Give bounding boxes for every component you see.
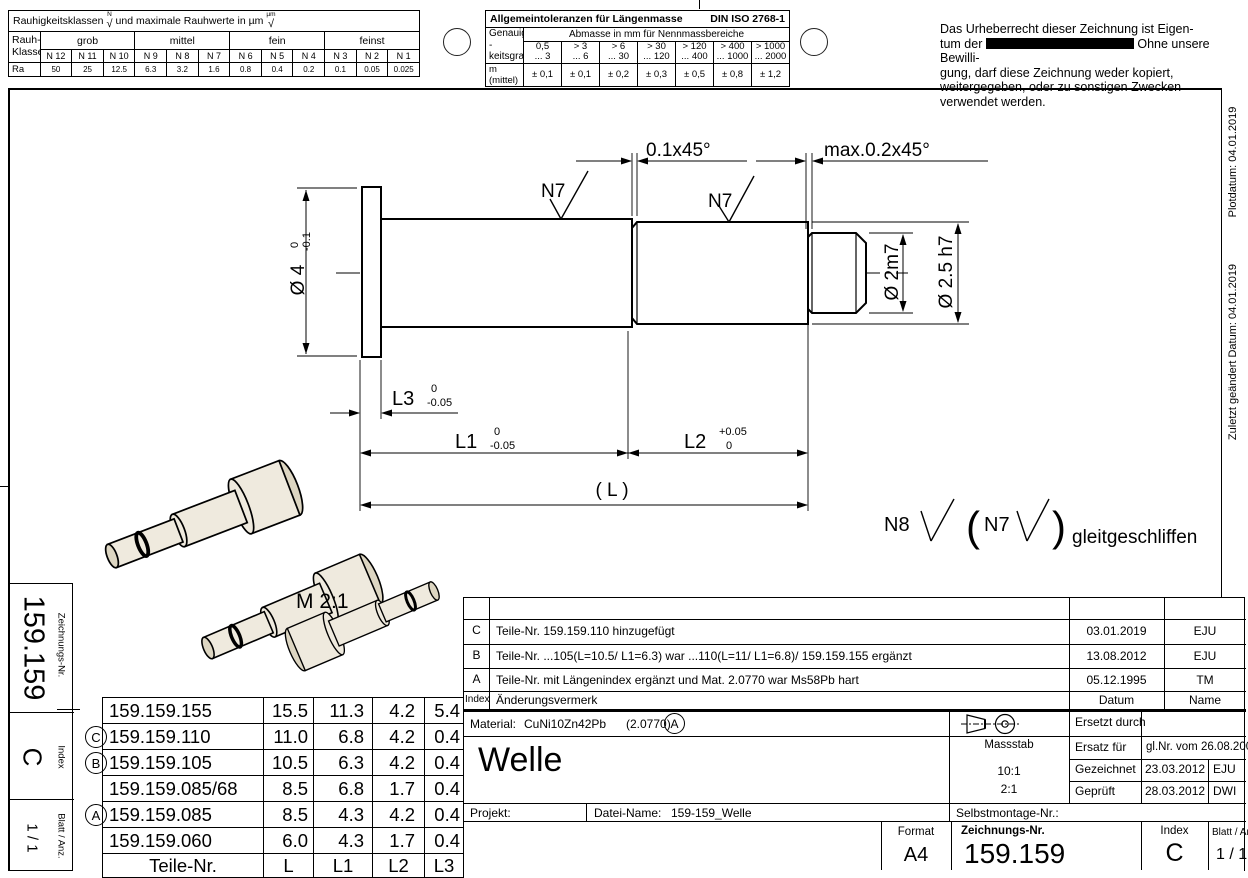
iso-scale-label: M 2:1 [296, 590, 349, 613]
ra-value: 0.8 [230, 63, 262, 77]
roughness-group: feinst [325, 32, 420, 50]
table-row: 159.159.105 10.5 6.3 4.2 0.4 [103, 750, 464, 776]
datei-label: Datei-Name: [594, 806, 661, 820]
svg-text:0: 0 [494, 426, 500, 438]
strip-blatt-value: 1 / 1 [24, 823, 41, 852]
part-nr: 159.159.155 [103, 698, 264, 724]
revision-date: 03.01.2019 [1069, 624, 1164, 638]
tolerance-table: Allgemeintoleranzen für Längenmasse DIN … [485, 10, 790, 87]
geprueft-label: Geprüft [1075, 784, 1115, 798]
revision-text: Teile-Nr. mit Längenindex ergänzt und Ma… [496, 673, 859, 687]
table-header-row: Teile-Nr. L L1 L2 L3 [103, 854, 464, 878]
geprueft-date: 28.03.2012 [1145, 784, 1205, 798]
zeichnungs-nr-value: 159.159 [964, 838, 1065, 870]
strip-blatt-label: Blatt / Anz. [56, 813, 67, 858]
revision-index: A [464, 672, 489, 686]
revision-header-name: Name [1164, 693, 1246, 707]
roughness-group: mittel [135, 32, 230, 50]
ersetzt-label: Ersetzt durch [1075, 715, 1146, 729]
revision-marker-a: A [85, 804, 107, 826]
surface-symbol-mid: N7 [708, 176, 754, 222]
revision-name: TM [1164, 673, 1246, 687]
blatt-label: Blatt / Anz. [1212, 827, 1248, 838]
selbstmontage-label: Selbstmontage-Nr.: [956, 806, 1059, 820]
roughness-class: N 12 [40, 50, 72, 63]
iso-view-group [97, 458, 446, 675]
geprueft-name: DWI [1213, 784, 1236, 798]
part-nr: 159.159.105 [103, 750, 264, 776]
ra-value: 12.5 [103, 63, 135, 77]
roughness-class: N 10 [103, 50, 135, 63]
material-revision-marker: A [664, 713, 685, 734]
format-label: Format [883, 826, 949, 838]
tolerance-m-label: m (mittel) [486, 63, 524, 86]
projekt-label: Projekt: [470, 806, 511, 820]
roughness-class: N 2 [356, 50, 388, 63]
ra-value: 0.025 [388, 63, 420, 77]
svg-text:L3: L3 [392, 388, 414, 410]
col-header-l: L [264, 854, 314, 878]
roughness-class: N 5 [261, 50, 293, 63]
copyright-line: tum der Ohne unsere Bewilli- [940, 37, 1248, 66]
roughness-class: N 6 [230, 50, 262, 63]
l3-dim: L3 0 -0.05 [392, 383, 452, 410]
svg-text:0: 0 [726, 440, 732, 452]
ra-value: 0.2 [293, 63, 325, 77]
ersatz-label: Ersatz für [1075, 740, 1126, 754]
tolerance-standard: DIN ISO 2768-1 [710, 13, 785, 25]
tolerance-range: > 30... 120 [638, 41, 676, 63]
tolerance-range: > 1000... 2000 [752, 41, 790, 63]
svg-text:-0.1: -0.1 [301, 232, 313, 251]
revision-header-index: Index [465, 694, 489, 705]
shaft-flange [362, 187, 381, 357]
revision-date: 05.12.1995 [1069, 673, 1164, 687]
datei-value: 159-159_Welle [671, 806, 752, 820]
gezeichnet-date: 23.03.2012 [1145, 762, 1205, 776]
tolerance-m-value: ± 0,3 [638, 63, 676, 86]
gezeichnet-name: EJU [1213, 762, 1236, 776]
revision-header-text: Änderungsvermerk [496, 693, 597, 707]
revision-name: EJU [1164, 624, 1246, 638]
revision-index: B [464, 648, 489, 662]
material-label: Material: [470, 717, 516, 731]
svg-text:0: 0 [431, 383, 437, 395]
tolerance-range: 0,5... 3 [524, 41, 562, 63]
scale-value-2: 2:1 [949, 782, 1069, 796]
table-row: 159.159.110 11.0 6.8 4.2 0.4 [103, 724, 464, 750]
revision-text: Teile-Nr. ...105(L=10.5/ L1=6.3) war ...… [496, 649, 912, 663]
table-row: 159.159.085 8.5 4.3 4.2 0.4 [103, 802, 464, 828]
registration-circle-left [443, 28, 471, 56]
ra-value: 0.05 [356, 63, 388, 77]
general-surface-note: N8 ( N7 ) gleitgeschliffen [884, 499, 1197, 550]
ra-value: 6.3 [135, 63, 167, 77]
ra-value: 3.2 [167, 63, 199, 77]
revision-index: C [464, 623, 489, 637]
tolerance-title: Allgemeintoleranzen für Längenmasse [490, 13, 683, 25]
svg-text:-0.05: -0.05 [427, 397, 452, 409]
svg-text:L1: L1 [455, 431, 477, 453]
part-title: Welle [478, 741, 562, 780]
svg-text:-0.05: -0.05 [490, 440, 515, 452]
roughness-table: Rauhigkeitsklassen N√ und maximale Rauhw… [8, 10, 420, 77]
revision-text: Teile-Nr. 159.159.110 hinzugefügt [496, 624, 675, 638]
zeichnungs-nr-label: Zeichnungs-Nr. [961, 825, 1045, 837]
svg-text:Ø 2m7: Ø 2m7 [882, 243, 903, 300]
shaft-outline [362, 187, 866, 357]
format-value: A4 [883, 844, 949, 867]
engineering-drawing-sheet: { "roughness_table": { "title_a": "Rauhi… [0, 0, 1248, 871]
dimension-lines [306, 161, 988, 505]
roughness-group: grob [40, 32, 135, 50]
ra-value: 1.6 [198, 63, 230, 77]
roughness-class: N 11 [72, 50, 104, 63]
end-diameter-dim: Ø 2m7 [882, 243, 903, 300]
material-value: CuNi10Zn42Pb [524, 717, 606, 731]
ra-value: 50 [40, 63, 72, 77]
l1-dim: L1 0 -0.05 [455, 426, 515, 453]
table-row: 159.159.060 6.0 4.3 1.7 0.4 [103, 828, 464, 854]
tolerance-m-value: ± 0,8 [714, 63, 752, 86]
flange-diameter-dim: Ø 4 0 -0.1 [288, 232, 313, 295]
roughness-class: N 3 [325, 50, 357, 63]
tolerance-m-value: ± 0,5 [676, 63, 714, 86]
ra-value: 25 [72, 63, 104, 77]
svg-text:N8: N8 [884, 514, 910, 536]
part-nr: 159.159.110 [103, 724, 264, 750]
col-header-l1: L1 [314, 854, 373, 878]
revision-name: EJU [1164, 649, 1246, 663]
strip-index-value: C [17, 748, 48, 767]
tolerance-m-value: ± 0,1 [524, 63, 562, 86]
svg-text:0: 0 [289, 242, 301, 248]
strip-index-label: Index [56, 745, 67, 768]
iso-shaft-large [97, 458, 308, 585]
svg-text:Ø 2.5 h7: Ø 2.5 h7 [936, 236, 957, 309]
revision-marker-b: B [85, 752, 107, 774]
projection-method-icon [959, 712, 1059, 736]
copyright-line: gung, darf diese Zeichnung weder kopiert… [940, 66, 1248, 81]
ra-value: 0.4 [261, 63, 293, 77]
part-nr: 159.159.060 [103, 828, 264, 854]
revision-date: 13.08.2012 [1069, 649, 1164, 663]
parts-table: 159.159.155 15.5 11.3 4.2 5.4 159.159.11… [102, 697, 464, 878]
tolerance-m-value: ± 0,1 [562, 63, 600, 86]
roughness-class: N 8 [167, 50, 199, 63]
col-header-teile-nr: Teile-Nr. [103, 854, 264, 878]
roughness-class: N 4 [293, 50, 325, 63]
revision-header-date: Datum [1069, 693, 1164, 707]
ersatz-value: gl.Nr. vom 26.08.2002 [1146, 741, 1248, 753]
svg-text:N7: N7 [984, 514, 1010, 536]
tolerance-range: > 120... 400 [676, 41, 714, 63]
roughness-symbol-n-icon: N√ [106, 12, 112, 30]
index-label: Index [1141, 825, 1208, 837]
svg-text:+0.05: +0.05 [719, 426, 747, 438]
l-total-dim: ( L ) [595, 480, 628, 501]
col-header-l2: L2 [373, 854, 425, 878]
massstab-label: Massstab [949, 739, 1069, 751]
extension-lines [297, 153, 969, 511]
roughness-class: N 1 [388, 50, 420, 63]
fold-mark-top [699, 0, 700, 9]
roughness-group: fein [230, 32, 325, 50]
col-header-l3: L3 [425, 854, 464, 878]
shaft-mid-section [632, 222, 808, 324]
chamfer-dim-left: 0.1x45° [646, 140, 711, 161]
svg-text:L2: L2 [684, 431, 706, 453]
tolerance-m-value: ± 1,2 [752, 63, 790, 86]
ra-value: 0.1 [325, 63, 357, 77]
roughness-symbol-um-icon: µm√ [266, 12, 275, 30]
table-row: 159.159.085/68 8.5 6.8 1.7 0.4 [103, 776, 464, 802]
scale-value-1: 10:1 [949, 764, 1069, 778]
tolerance-range: > 3... 6 [562, 41, 600, 63]
revision-marker-c: C [85, 726, 107, 748]
strip-zeichnungs-nr-value: 159.159 [17, 596, 50, 701]
registration-circle-right [800, 28, 828, 56]
tolerance-range: > 400... 1000 [714, 41, 752, 63]
chamfer-dim-right: max.0.2x45° [824, 140, 930, 161]
shaft-body [381, 219, 632, 327]
roughness-title-2: und maximale Rauhwerte in µm [116, 15, 264, 27]
tolerance-col-header: Abmasse in mm für Nennmassbereiche [524, 28, 790, 42]
gezeichnet-label: Gezeichnet [1075, 762, 1136, 776]
blatt-value: 1 / 1 [1216, 846, 1247, 864]
l2-dim: L2 +0.05 0 [684, 426, 747, 453]
redacted-owner-name [986, 38, 1134, 49]
mid-diameter-dim: Ø 2.5 h7 [936, 236, 957, 309]
title-block: C Teile-Nr. 159.159.110 hinzugefügt 03.0… [463, 597, 1245, 871]
roughness-class: N 9 [135, 50, 167, 63]
paren-close: ) [1052, 503, 1066, 550]
part-nr: 159.159.085/68 [103, 776, 264, 802]
roughness-title: Rauhigkeitsklassen [13, 15, 103, 27]
strip-zeichnungs-nr-label: Zeichnungs-Nr. [56, 613, 67, 677]
surface-symbol-body: N7 [541, 171, 588, 219]
part-nr: 159.159.085 [103, 802, 264, 828]
tolerance-m-value: ± 0,2 [600, 63, 638, 86]
tolerance-range: > 6... 30 [600, 41, 638, 63]
roughness-class: N 7 [198, 50, 230, 63]
tolerance-row-header: Genauig - keitsgrad [486, 28, 524, 64]
roughness-row-label: Rauh- Klasse [9, 32, 41, 63]
svg-text:Ø 4: Ø 4 [288, 264, 309, 295]
surface-note-text: gleitgeschliffen [1072, 527, 1197, 548]
paren-open: ( [966, 503, 980, 550]
index-value: C [1141, 839, 1208, 868]
ra-label: Ra [9, 63, 41, 77]
svg-text:N7: N7 [541, 181, 565, 202]
copyright-line: Das Urheberrecht dieser Zeichnung ist Ei… [940, 22, 1248, 37]
table-row: 159.159.155 15.5 11.3 4.2 5.4 [103, 698, 464, 724]
shaft-end-section [808, 233, 866, 313]
